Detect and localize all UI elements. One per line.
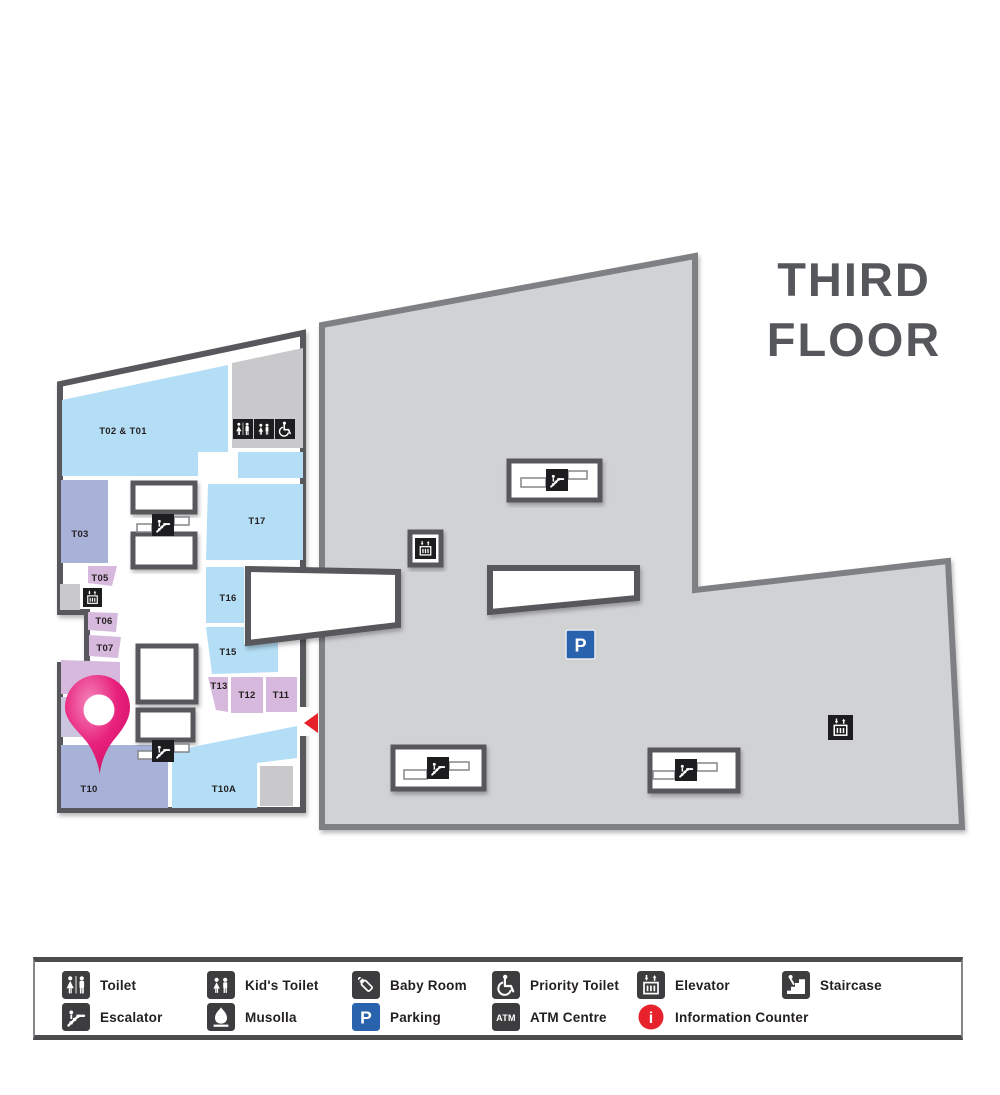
- escalator-landing: [393, 747, 484, 789]
- atrium-void: [133, 483, 195, 512]
- legend-label: Escalator: [100, 1010, 163, 1025]
- elevator-icon: [637, 971, 665, 999]
- floor-title-line2: FLOOR: [728, 310, 980, 370]
- atm-icon: [492, 1003, 520, 1031]
- concrete-corner: [260, 766, 293, 806]
- unit-label-t17: T17: [248, 516, 265, 527]
- floor-title-line1: THIRD: [728, 250, 980, 310]
- unit-label-t12: T12: [238, 690, 255, 701]
- parking-sign: [566, 630, 595, 659]
- legend-item-priority-toilet: Priority Toilet: [492, 971, 619, 999]
- staircase-icon: [782, 971, 810, 999]
- musolla-icon: [207, 1003, 235, 1031]
- unit-label-t10: T10: [80, 784, 97, 795]
- atrium-void: [138, 646, 196, 702]
- toilet-icon: [62, 971, 90, 999]
- elevator-icon: [828, 715, 853, 740]
- unit-label-t13: T13: [210, 681, 227, 692]
- unit-label-t02-t01: T02 & T01: [99, 426, 147, 437]
- legend-item-kids-toilet: Kid's Toilet: [207, 971, 319, 999]
- toilet-icon: [233, 419, 253, 439]
- legend-item-parking: Parking: [352, 1003, 441, 1031]
- legend-label: Staircase: [820, 978, 882, 993]
- priority-toilet-icon: [492, 971, 520, 999]
- parking-icon: [352, 1003, 380, 1031]
- legend-label: Information Counter: [675, 1010, 809, 1025]
- floor-title: THIRD FLOOR: [728, 250, 980, 370]
- legend-item-elevator: Elevator: [637, 971, 730, 999]
- legend-item-escalator: Escalator: [62, 1003, 163, 1031]
- floor-plan-page: P ATM i: [0, 0, 1000, 1095]
- legend-label: Parking: [390, 1010, 441, 1025]
- kids-toilet-icon: [207, 971, 235, 999]
- escalator-icon: [546, 469, 568, 491]
- escalator-icon: [675, 759, 697, 781]
- legend-item-musolla: Musolla: [207, 1003, 297, 1031]
- legend-label: Baby Room: [390, 978, 467, 993]
- legend-label: Musolla: [245, 1010, 297, 1025]
- escalator-landing: [650, 750, 738, 791]
- unit-label-t11: T11: [273, 690, 290, 701]
- kids-toilet-icon: [254, 419, 274, 439]
- unit-label-t07: T07: [96, 643, 113, 654]
- unit-label-t03: T03: [71, 529, 88, 540]
- info-icon: [637, 1003, 665, 1031]
- unit-label-t05: T05: [91, 573, 109, 584]
- baby-room-icon: [352, 971, 380, 999]
- priority-toilet-icon: [275, 419, 295, 439]
- legend-label: Elevator: [675, 978, 730, 993]
- elevator-icon: [83, 588, 102, 607]
- floor-plan-map: P ATM i: [0, 0, 1000, 1095]
- escalator-icon: [62, 1003, 90, 1031]
- elevator-icon: [415, 538, 436, 559]
- legend-label: ATM Centre: [530, 1010, 607, 1025]
- legend-item-atm: ATM Centre: [492, 1003, 607, 1031]
- legend-label: Kid's Toilet: [245, 978, 319, 993]
- escalator-icon: [427, 757, 449, 779]
- legend-label: Priority Toilet: [530, 978, 619, 993]
- unit-label-t15: T15: [219, 647, 237, 658]
- unit-t17-upper-strip: [238, 452, 303, 478]
- unit-label-t10a: T10A: [212, 784, 236, 795]
- escalator-landing: [509, 461, 600, 500]
- unit-label-t16: T16: [219, 593, 236, 604]
- concrete-by-elevator: [60, 584, 80, 610]
- unit-label-t06: T06: [95, 616, 112, 627]
- legend-item-baby-room: Baby Room: [352, 971, 467, 999]
- unit-t03: [61, 480, 108, 563]
- atrium-void: [133, 534, 195, 567]
- legend-item-staircase: Staircase: [782, 971, 882, 999]
- legend-item-toilet: Toilet: [62, 971, 136, 999]
- atrium-void: [138, 710, 193, 740]
- legend-item-information-counter: Information Counter: [637, 1003, 809, 1031]
- legend: Toilet Kid's Toilet Baby Room Priority T…: [33, 957, 963, 1040]
- elevator-lobby: [410, 532, 441, 565]
- legend-label: Toilet: [100, 978, 136, 993]
